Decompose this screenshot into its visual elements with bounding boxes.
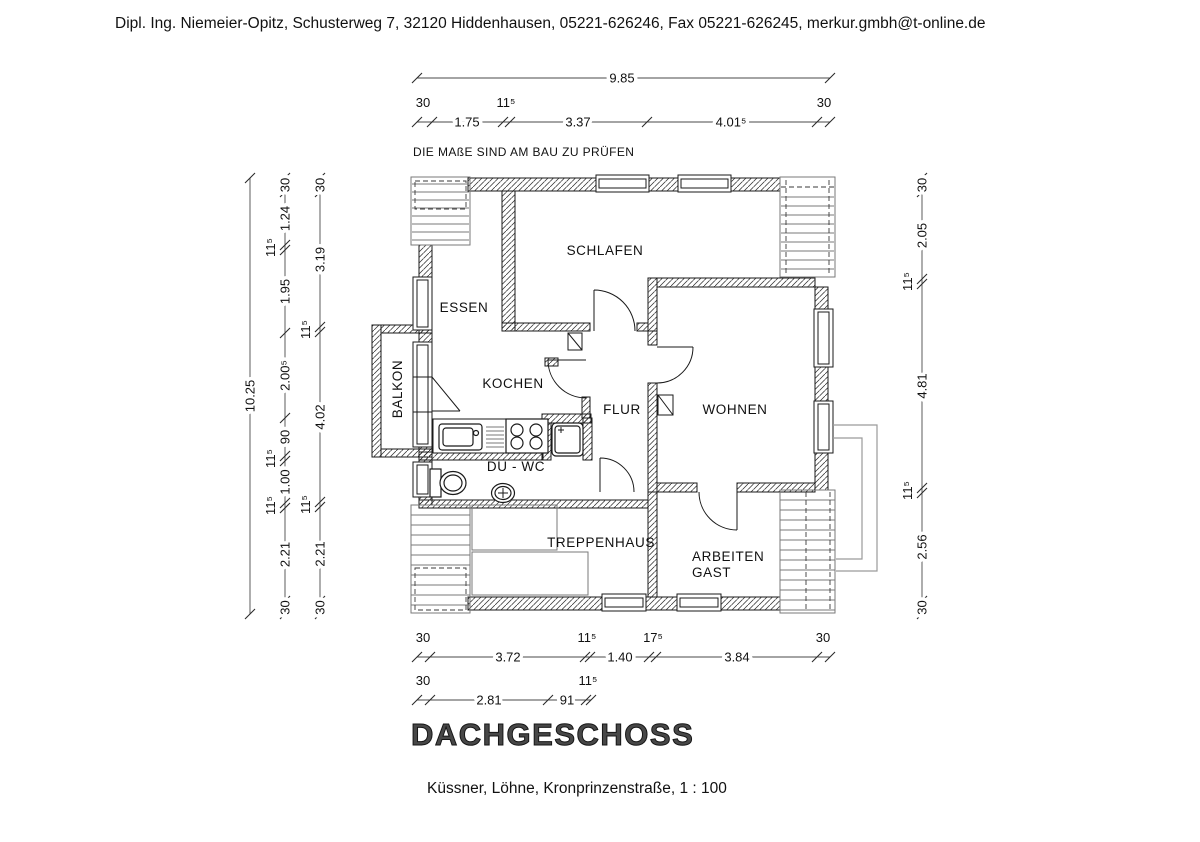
dim-label: 30 xyxy=(278,178,293,192)
chimney-wohnen xyxy=(658,395,673,415)
window-top-2 xyxy=(678,175,731,192)
dimension-bottom-chain-1: 30 3.72 11⁵ 1.40 17⁵ 3.84 30 xyxy=(412,630,835,665)
dimension-right-chain: 30 2.05 11⁵ 4.81 11⁵ 2.56 30 xyxy=(900,173,930,619)
dimension-left-chain-b: 30 3.19 11⁵ 4.02 11⁵ 2.21 30 xyxy=(298,173,328,619)
door-arbeiten-gast xyxy=(699,492,737,530)
dim-label: 1.75 xyxy=(454,115,479,130)
door-duwc xyxy=(600,458,634,492)
dimension-top-total: 9.85 xyxy=(412,71,835,86)
dim-label: 2.21 xyxy=(278,542,293,567)
toilet xyxy=(430,469,466,497)
roof-outline-right xyxy=(833,425,877,571)
dim-label: 1.40 xyxy=(607,650,632,665)
dim-label: 11⁵ xyxy=(298,320,313,339)
room-label-balkon: BALKON xyxy=(390,360,405,418)
dim-label: 11⁵ xyxy=(578,630,597,645)
room-label-schlafen: SCHLAFEN xyxy=(567,243,644,258)
floor-plan-sheet: Dipl. Ing. Niemeier-Opitz, Schusterweg 7… xyxy=(0,0,1200,842)
dormer-top-right xyxy=(780,177,835,277)
dim-label: 3.84 xyxy=(724,650,749,665)
dim-label: 30 xyxy=(313,600,328,614)
dim-label: 11⁵ xyxy=(579,673,598,688)
stairwell-outline xyxy=(472,505,588,595)
dormer-bottom-right xyxy=(780,490,835,613)
dim-label: 4.01⁵ xyxy=(716,115,747,130)
window-bottom-1 xyxy=(602,594,646,611)
dim-label: 17⁵ xyxy=(643,630,663,645)
kitchen-sink xyxy=(439,424,482,450)
dim-label: 3.37 xyxy=(565,115,590,130)
dimension-left-chain-a: 30 1.24 11⁵ 1.95 2.00⁵ 90 11⁵ 1.00 11⁵ 2… xyxy=(263,173,293,619)
kitchen-fixtures xyxy=(433,419,548,453)
window-left-balcony-door xyxy=(413,342,432,447)
drawing-canvas: Dipl. Ing. Niemeier-Opitz, Schusterweg 7… xyxy=(0,0,1200,842)
dim-label: 11⁵ xyxy=(263,449,278,468)
dim-label: 1.24 xyxy=(278,206,293,231)
dim-label: 11⁵ xyxy=(900,272,915,291)
window-top-1 xyxy=(596,175,649,192)
kitchen-stove xyxy=(506,419,548,453)
chimney-flur xyxy=(568,333,582,350)
sheet-title: DACHGESCHOSS xyxy=(411,717,694,752)
project-caption: Küssner, Löhne, Kronprinzenstraße, 1 : 1… xyxy=(427,780,727,797)
dim-label: 30 xyxy=(416,630,430,645)
dim-label: 30 xyxy=(816,630,830,645)
dim-label: 30 xyxy=(313,178,328,192)
room-label-arbeiten: ARBEITEN xyxy=(692,549,764,564)
stairs-bottom-left xyxy=(411,505,470,613)
dim-label: 11⁵ xyxy=(298,495,313,514)
dimension-left-total: 10.25 xyxy=(243,173,258,619)
window-left-essen xyxy=(413,277,432,330)
dim-label: 1.00 xyxy=(278,469,293,494)
dim-label: 4.81 xyxy=(915,373,930,398)
dim-label: 30 xyxy=(915,178,930,192)
window-right-2 xyxy=(814,401,833,453)
dimension-bottom-chain-2: 30 2.81 91 11⁵ xyxy=(412,673,597,708)
dimension-top-chain: 30 1.75 11⁵ 3.37 4.01⁵ 30 xyxy=(412,95,835,130)
dim-label: 3.19 xyxy=(313,247,328,272)
room-label-gast: GAST xyxy=(692,565,731,580)
dim-label: 30 xyxy=(278,600,293,614)
dim-label: 2.21 xyxy=(313,541,328,566)
measure-note: DIE MAßE SIND AM BAU ZU PRÜFEN xyxy=(413,145,634,159)
dim-label: 2.05 xyxy=(915,223,930,248)
dim-label: 30 xyxy=(416,673,430,688)
dim-label: 90 xyxy=(278,430,293,444)
dim-label: 10.25 xyxy=(243,380,258,413)
dim-label: 30 xyxy=(416,95,430,110)
dim-label: 11⁵ xyxy=(263,496,278,515)
dim-label: 9.85 xyxy=(609,71,634,86)
door-schlafen xyxy=(594,290,635,331)
door-wohnen xyxy=(657,347,693,383)
dim-label: 11⁵ xyxy=(497,95,516,110)
window-bottom-2 xyxy=(677,594,721,611)
room-label-wohnen: WOHNEN xyxy=(702,402,767,417)
dim-label: 2.00⁵ xyxy=(278,360,293,391)
shower-tray xyxy=(552,423,583,456)
dim-label: 91 xyxy=(560,693,574,708)
room-label-treppenhaus: TREPPENHAUS xyxy=(547,535,655,550)
room-label-essen: ESSEN xyxy=(440,300,489,315)
architect-header: Dipl. Ing. Niemeier-Opitz, Schusterweg 7… xyxy=(115,15,985,32)
room-label-kochen: KOCHEN xyxy=(482,376,543,391)
dim-label: 2.56 xyxy=(915,534,930,559)
dim-label: 11⁵ xyxy=(900,481,915,500)
dim-label: 2.81 xyxy=(476,693,501,708)
dim-label: 3.72 xyxy=(495,650,520,665)
washbasin xyxy=(492,484,515,503)
dim-label: 30 xyxy=(915,600,930,614)
room-label-du-wc: DU - WC xyxy=(487,459,545,474)
window-right-1 xyxy=(814,309,833,367)
door-balkon xyxy=(432,377,460,411)
dim-label: 11⁵ xyxy=(263,238,278,257)
window-left-duwc xyxy=(413,462,432,497)
dim-label: 30 xyxy=(817,95,831,110)
dim-label: 1.95 xyxy=(278,279,293,304)
dormer-top-left xyxy=(411,177,470,245)
dim-label: 4.02 xyxy=(313,404,328,429)
room-label-flur: FLUR xyxy=(603,402,641,417)
